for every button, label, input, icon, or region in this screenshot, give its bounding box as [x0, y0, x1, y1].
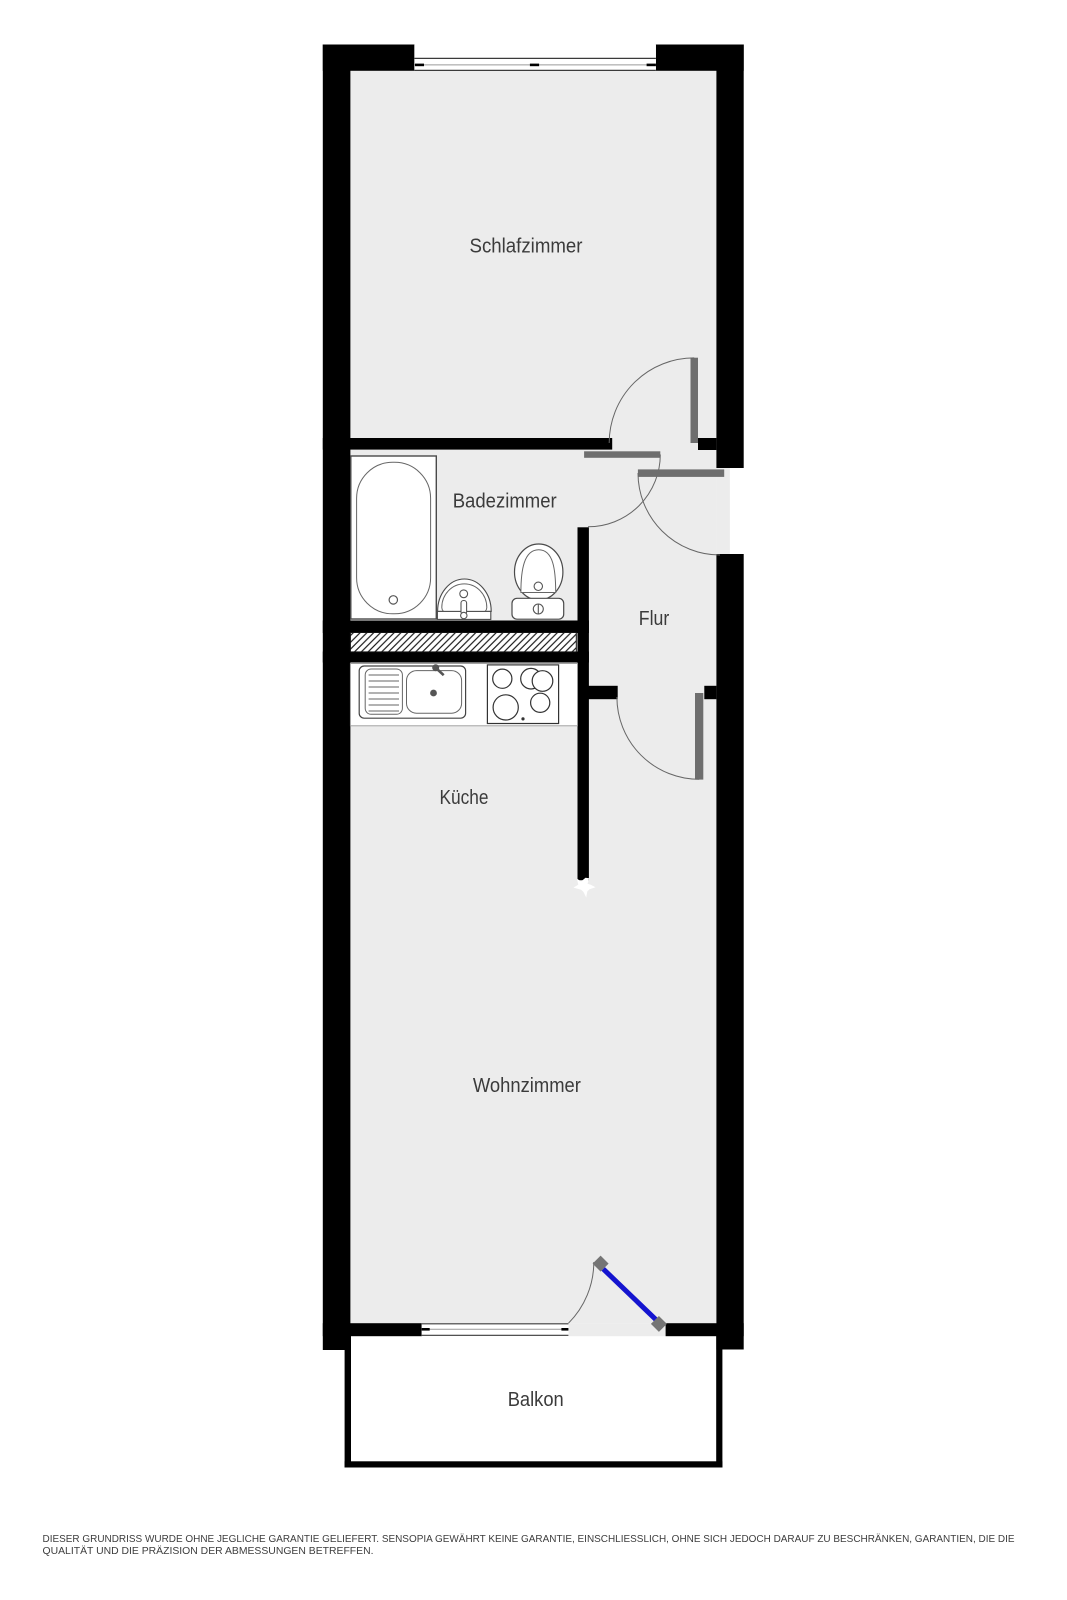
svg-text:Flur: Flur: [639, 607, 670, 630]
svg-text:Küche: Küche: [440, 786, 489, 809]
svg-text:Wohnzimmer: Wohnzimmer: [473, 1074, 581, 1097]
svg-text:DIESER GRUNDRISS WURDE OHNE JE: DIESER GRUNDRISS WURDE OHNE JEGLICHE GAR…: [43, 1533, 1015, 1545]
svg-text:Schlafzimmer: Schlafzimmer: [470, 235, 583, 258]
svg-text:Badezimmer: Badezimmer: [453, 489, 557, 512]
svg-text:QUALITÄT UND DIE PRÄZISION DER: QUALITÄT UND DIE PRÄZISION DER ABMESSUNG…: [43, 1545, 374, 1557]
svg-text:Balkon: Balkon: [508, 1388, 564, 1411]
